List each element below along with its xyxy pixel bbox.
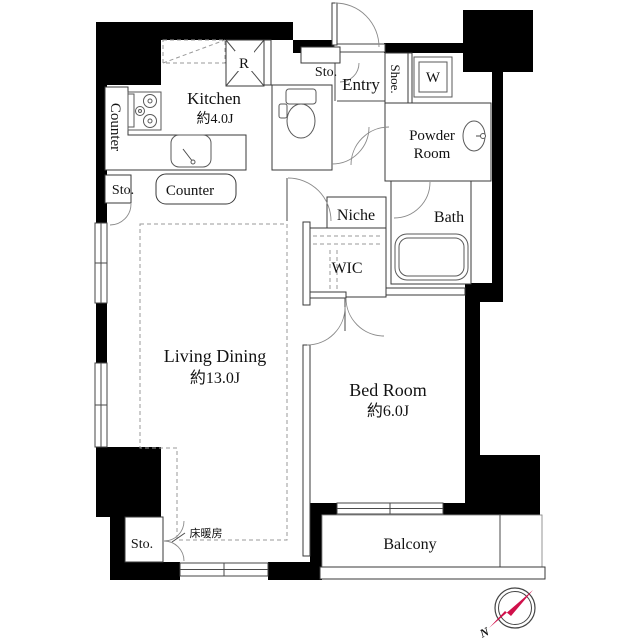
- room-label-bedroom: Bed Room: [349, 380, 427, 400]
- entry-door-threshold: [334, 44, 385, 52]
- floor-plan: N Kitchen 約4.0J Counter R Sto. Entry Sho…: [0, 0, 640, 639]
- wall-segment: [465, 455, 540, 515]
- fridge-label: R: [239, 56, 249, 72]
- compass-north-label: N: [477, 624, 493, 639]
- floor-heating-label: 床暖房: [190, 526, 223, 540]
- room-size-bedroom: 約6.0J: [367, 402, 409, 420]
- room-label-living: Living Dining: [164, 346, 267, 366]
- room-size-kitchen: 約4.0J: [197, 111, 234, 127]
- window-left-upper: [95, 223, 107, 303]
- wall-segment: [465, 302, 480, 455]
- room-label-powder-line2: Room: [414, 146, 451, 162]
- room-size-living: 約13.0J: [190, 369, 240, 387]
- wall-segment: [310, 515, 322, 572]
- room-label-bath: Bath: [434, 209, 464, 226]
- wall-segment: [96, 22, 161, 85]
- bathtub-icon: [395, 234, 468, 280]
- room-label-entry: Entry: [342, 75, 380, 94]
- toilet-room: [272, 85, 369, 170]
- wall-segment: [110, 562, 180, 580]
- wall-segment: [384, 43, 463, 53]
- entry-door: [332, 3, 379, 47]
- room-label-kitchen: Kitchen: [187, 89, 241, 108]
- room-label-powder-line1: Powder: [409, 128, 455, 144]
- window-left-lower: [95, 363, 107, 447]
- floor-plan-page: N Kitchen 約4.0J Counter R Sto. Entry Sho…: [0, 0, 640, 639]
- wall-segment: [443, 503, 465, 515]
- living-door: [287, 178, 331, 221]
- compass-icon: N: [477, 588, 535, 639]
- bath-area: [386, 181, 471, 295]
- room-label-balcony: Balcony: [383, 536, 436, 553]
- wic-door-arc: [346, 298, 384, 336]
- room-label-wic: WIC: [331, 260, 362, 277]
- wall-cabinet-dashed: [163, 40, 225, 63]
- room-label-niche: Niche: [337, 207, 375, 224]
- balcony-rim: [320, 567, 545, 579]
- wall-segment: [96, 447, 161, 517]
- window-living-south: [180, 563, 268, 576]
- storage-kitchen-label: Sto.: [112, 183, 134, 198]
- wall-segment: [492, 72, 503, 283]
- stove-icon: [128, 92, 161, 130]
- laundry-divider-wall: [408, 53, 412, 103]
- wic-south-wall: [309, 292, 346, 298]
- kitchen-hall-wall: [264, 40, 271, 85]
- counter-side-label: Counter: [107, 103, 123, 151]
- bedroom-door: [307, 298, 345, 345]
- wic-area: [309, 228, 386, 336]
- powder-door-arc: [351, 127, 389, 165]
- interior-walls: [303, 222, 310, 556]
- wall-segment: [463, 10, 533, 72]
- counter-bottom-label: Counter: [166, 183, 214, 199]
- living-divider-wall-upper: [303, 222, 310, 305]
- storage-entry-label: Sto.: [315, 65, 337, 80]
- toilet-door-arc: [332, 127, 369, 164]
- wall-segment: [310, 503, 337, 515]
- wall-segment: [465, 283, 503, 302]
- shoe-label: Shoe.: [388, 64, 403, 93]
- storage-living-label: Sto.: [131, 537, 153, 552]
- kitchen-sink-icon: [171, 135, 211, 167]
- window-bedroom-south: [337, 503, 443, 514]
- living-divider-wall-lower: [303, 345, 310, 556]
- washer-label: W: [426, 70, 441, 86]
- bath-south-wall: [386, 288, 465, 295]
- wall-segment: [96, 303, 107, 363]
